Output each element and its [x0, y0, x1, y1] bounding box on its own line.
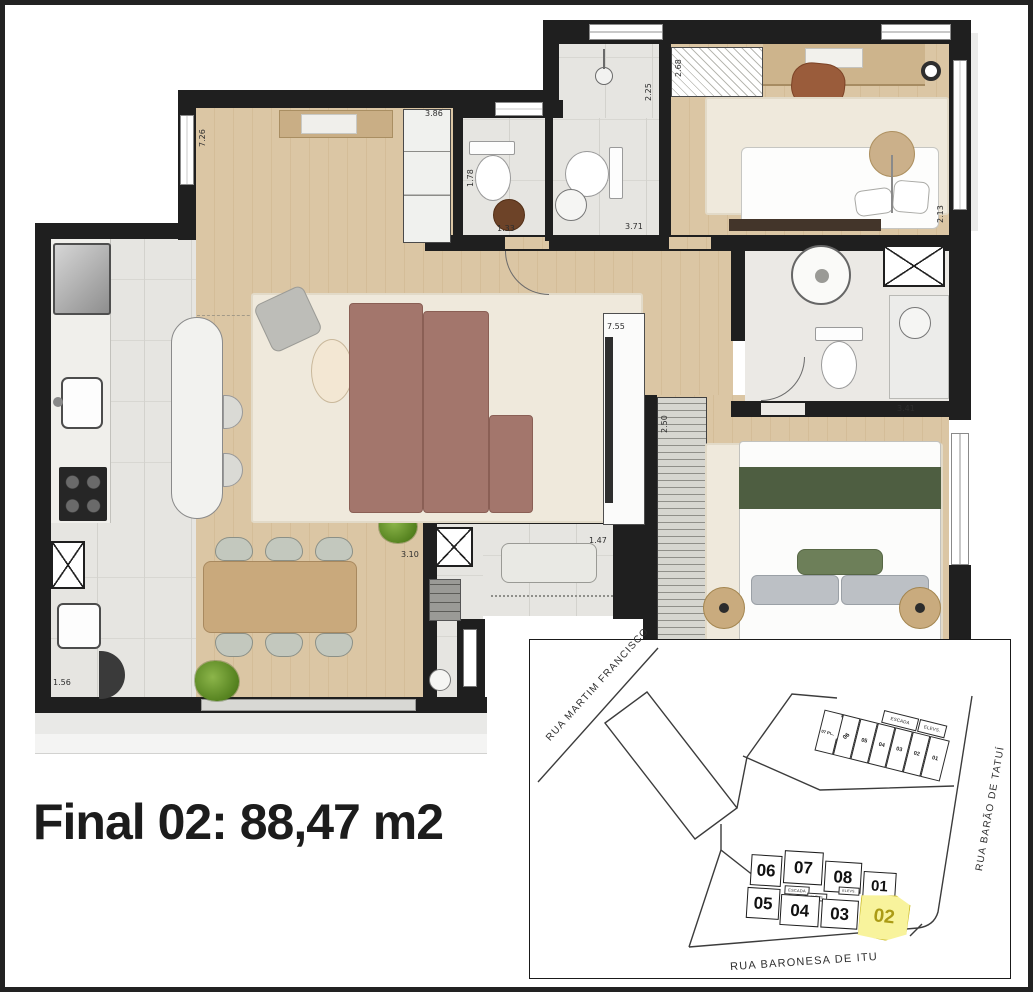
dimension-label: 2.68 — [675, 59, 683, 77]
page-title: Final 02: 88,47 m2 — [33, 793, 443, 851]
balcony-strip — [35, 712, 487, 734]
door-gap-bath2 — [761, 403, 805, 415]
cooktop — [59, 467, 107, 521]
kitchen-island — [171, 317, 223, 519]
cluster-unit-05: 05 — [746, 887, 781, 920]
window-bedroom1-right — [953, 60, 967, 210]
wall-bath1-bedroom1 — [659, 40, 671, 240]
fridge — [53, 243, 111, 315]
nightstand-lamp — [915, 603, 925, 613]
dimension-label: 1.78 — [467, 169, 475, 187]
dimension-label: 7.55 — [607, 323, 625, 331]
shower-pipe — [603, 49, 605, 69]
wall-bedroom2-left — [643, 395, 657, 665]
dimension-label: 1.56 — [53, 679, 71, 687]
pillow — [892, 179, 931, 214]
dimension-label: 1.33 — [497, 225, 515, 233]
shaft-service — [51, 541, 85, 589]
balcony-bench — [501, 543, 597, 583]
sofa-section — [349, 303, 423, 513]
sofa-section — [489, 415, 533, 513]
kitchen-faucet — [53, 397, 63, 407]
round-sink — [555, 189, 587, 221]
grill-appliance — [429, 579, 461, 621]
dimension-label: 3.71 — [625, 223, 643, 231]
wall-right-mid — [949, 242, 971, 420]
nightstand-lamp — [719, 603, 729, 613]
dining-chair — [315, 633, 353, 657]
sofa-section — [423, 311, 489, 513]
toilet-tank — [609, 147, 623, 199]
window-bath1-top — [589, 24, 663, 40]
shaft-bath2 — [883, 245, 945, 287]
window-bedroom2-right — [951, 433, 969, 565]
window-entry-left — [180, 115, 194, 185]
pillow — [853, 186, 894, 217]
dining-chair — [315, 537, 353, 561]
cluster-elevators-box: ELEVS. — [838, 886, 859, 895]
shower-head — [815, 269, 829, 283]
dimension-label: 2.50 — [661, 415, 669, 433]
site-plan-inset: RUA MARTIM FRANCISCO RUA BARÃO DE TATUÍ … — [529, 639, 1011, 979]
cluster-unit-02-highlighted: 02 — [857, 892, 912, 943]
entry-cabinet — [403, 109, 451, 243]
hall-floor — [643, 251, 733, 401]
ceiling-light-icon — [921, 61, 941, 81]
shaft-support — [435, 527, 473, 567]
dining-chair — [265, 633, 303, 657]
floorplan-image-frame: 3.86 7.26 2.25 1.78 1.33 3.71 2.68 2.13 … — [0, 0, 1033, 992]
round-sink — [899, 307, 931, 339]
entry-bench-cushion — [301, 114, 357, 134]
wall-bench-right — [613, 523, 643, 619]
shower-drain — [595, 67, 613, 85]
dresser-bedroom1 — [729, 219, 881, 231]
toilet-tank — [815, 327, 863, 341]
toilet-bowl — [821, 341, 857, 389]
dining-chair — [265, 537, 303, 561]
bed-green-blanket — [739, 467, 941, 509]
pillow — [751, 575, 839, 605]
window-lavabo — [495, 102, 543, 116]
dimension-label: 3.10 — [401, 551, 419, 559]
kitchen-sink — [61, 377, 103, 429]
service-door-leaf — [463, 629, 477, 687]
dining-table — [203, 561, 357, 633]
bench-dotted-edge — [491, 595, 613, 597]
toilet-bowl — [475, 155, 511, 201]
tv-screen — [605, 337, 613, 503]
dimension-label: 3.41 — [897, 405, 915, 413]
dimension-label: 1.47 — [589, 537, 607, 545]
laundry-tank — [57, 603, 101, 649]
wardrobe-bedroom1 — [671, 47, 763, 97]
wardrobe-bedroom2 — [657, 397, 707, 649]
cluster-unit-03: 03 — [820, 898, 859, 929]
dining-chair — [215, 633, 253, 657]
wall-lavabo-bath1 — [545, 118, 553, 241]
side-table-oval — [311, 339, 353, 403]
lamp-stem — [891, 155, 893, 213]
door-gap-bedroom1 — [669, 237, 711, 249]
cluster-unit-06: 06 — [750, 854, 783, 887]
balcony-edge — [35, 734, 487, 754]
toilet-tank — [469, 141, 515, 155]
dimension-label: 3.86 — [425, 110, 443, 118]
support-sink — [429, 669, 451, 691]
unit-cluster: 06 07 08 01 ESCADA ELEVS. ELEVS. 05 04 0… — [745, 848, 922, 948]
wall-bath2-left — [731, 251, 745, 341]
plant — [195, 661, 239, 701]
wall-lavabo-left — [453, 108, 463, 241]
cluster-unit-07: 07 — [783, 850, 824, 885]
dimension-label: 7.26 — [199, 129, 207, 147]
cluster-unit-04: 04 — [779, 894, 820, 927]
dining-chair — [215, 537, 253, 561]
bed-green-pillow — [797, 549, 883, 575]
wall-kitchen-step — [35, 223, 196, 239]
dimension-label: 2.13 — [937, 205, 945, 223]
window-balcony-door — [201, 699, 416, 711]
dimension-label: 2.25 — [645, 83, 653, 101]
door-gap-hall — [505, 237, 549, 249]
wall-kitchen-left — [35, 223, 51, 713]
window-bedroom1-top — [881, 24, 951, 40]
